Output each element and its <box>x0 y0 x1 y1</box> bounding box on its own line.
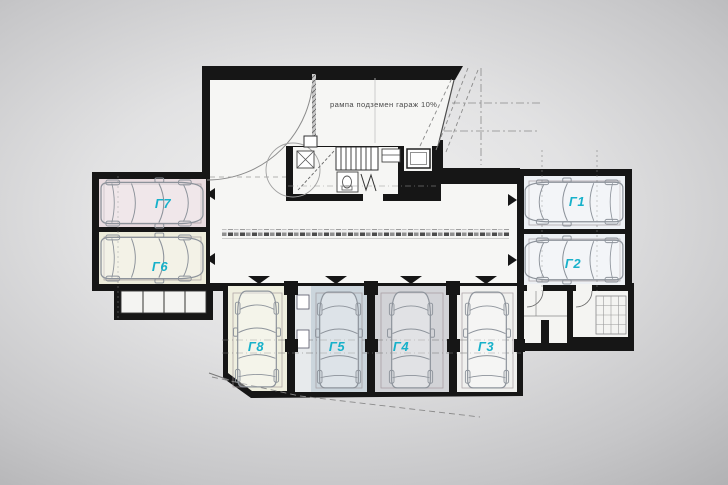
garage-g2-label: Г2 <box>565 256 581 271</box>
corridor-section-band <box>222 229 509 236</box>
wall-connector <box>437 168 520 184</box>
car-g6 <box>101 233 203 283</box>
elevator <box>407 149 430 168</box>
car-g7 <box>101 178 203 228</box>
ramp-edge-hatch <box>312 74 316 144</box>
vent-shaft-box <box>304 136 317 147</box>
room-b-door-opening <box>576 284 592 292</box>
room-a-door-opening <box>527 284 543 292</box>
garage-g7-label: Г7 <box>155 196 171 211</box>
garage-g3-label: Г3 <box>478 339 494 354</box>
floor-plan-drawing: рампа подземен гараж 10% Г1 Г2 Г3 Г4 Г5 … <box>0 0 728 485</box>
wall-ramp-left <box>202 66 210 180</box>
floor-plan-canvas: рампа подземен гараж 10% Г1 Г2 Г3 Г4 Г5 … <box>0 0 728 485</box>
garage-g6-label: Г6 <box>152 259 168 274</box>
wall-top-ramp <box>202 66 463 80</box>
storage-room-b-floor <box>573 291 628 337</box>
garage-g4-label: Г4 <box>393 339 409 354</box>
stair-door-opening <box>363 192 383 202</box>
wc-room <box>337 172 358 192</box>
ramp-area <box>210 80 454 146</box>
garage-g8-label: Г8 <box>248 339 264 354</box>
room-wall-stub <box>541 320 549 343</box>
ramp-projection-lines <box>444 68 540 165</box>
stair-counter-box <box>382 149 400 162</box>
ramp-label: рампа подземен гараж 10% <box>330 100 437 109</box>
garage-g5-label: Г5 <box>329 339 345 354</box>
garage-g1-label: Г1 <box>569 194 585 209</box>
